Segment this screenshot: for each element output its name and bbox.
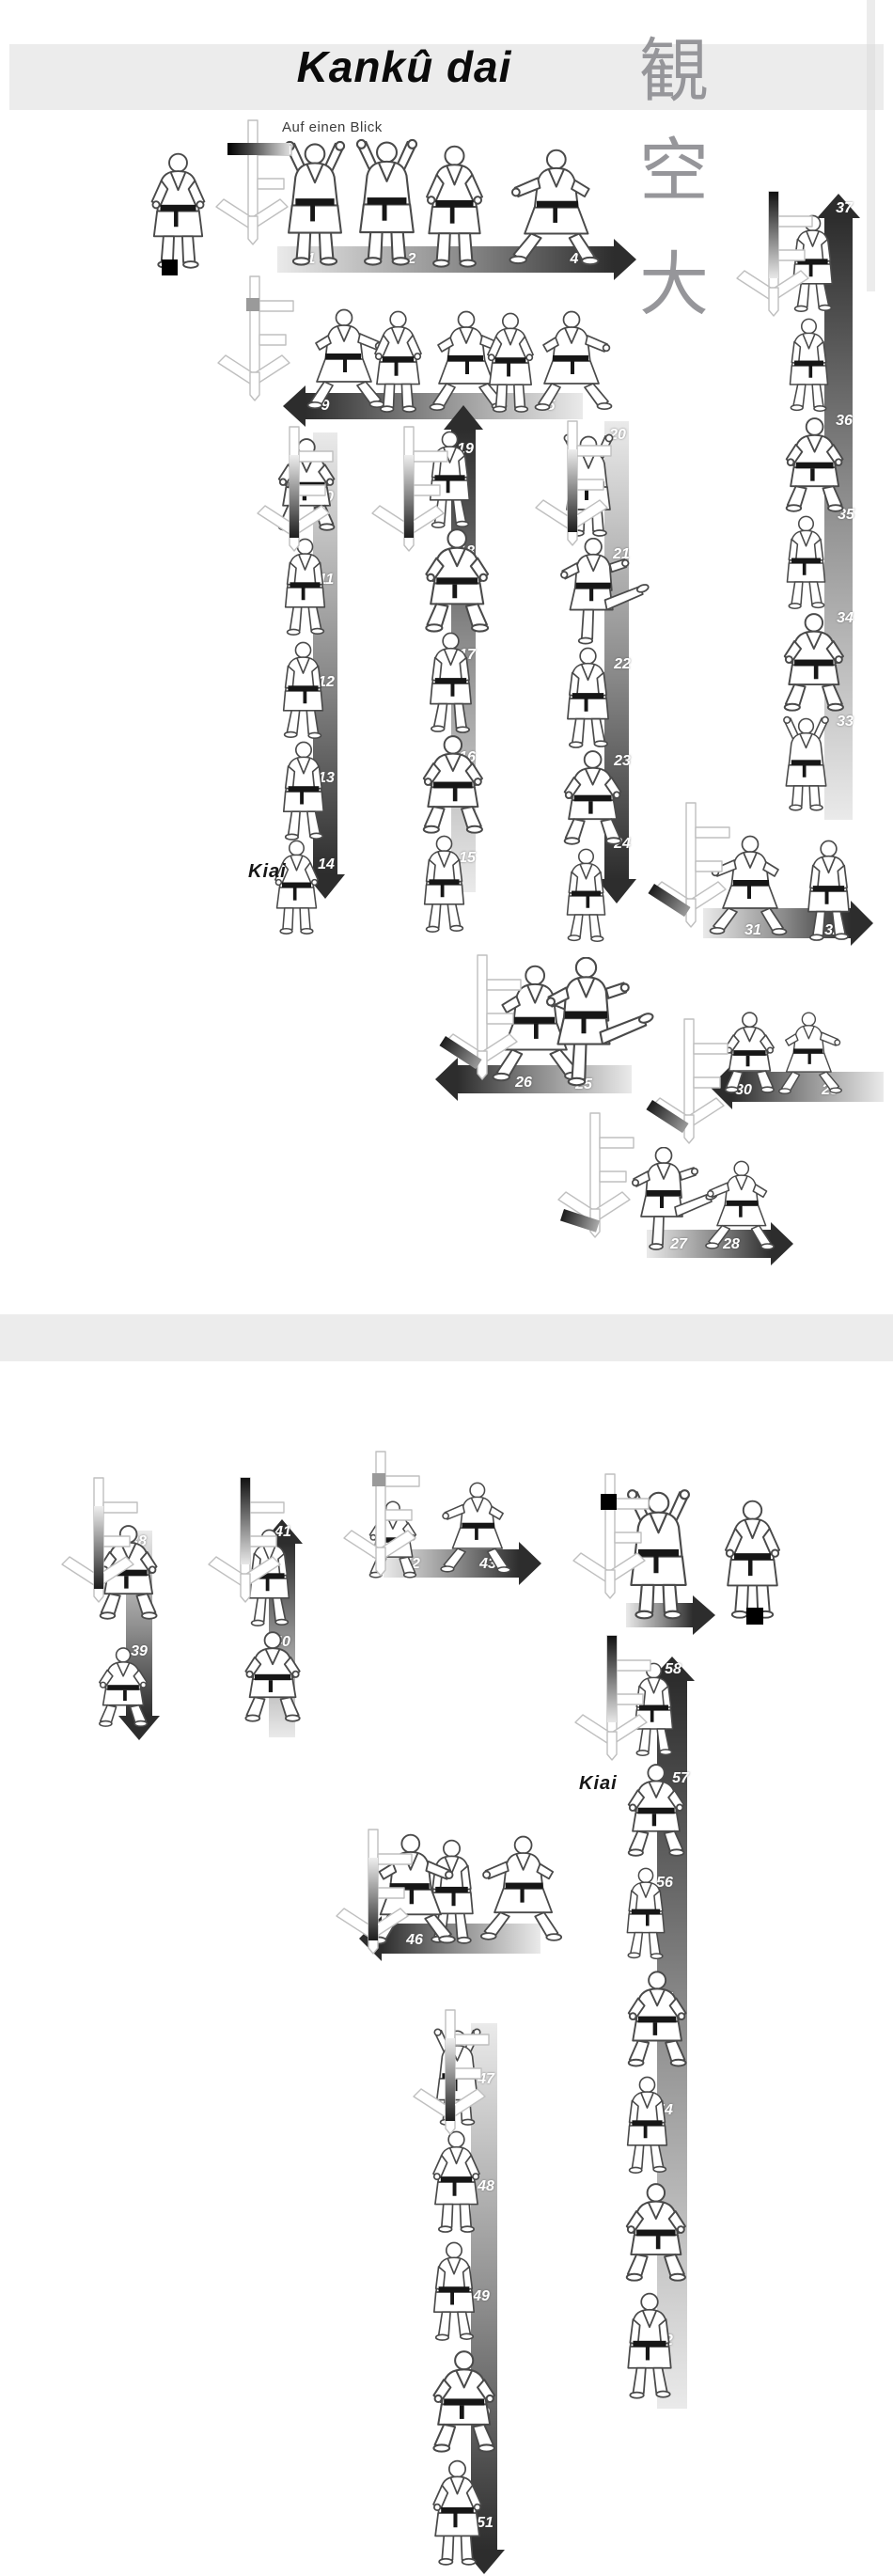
page-title: Kankû dai (216, 41, 592, 92)
embusen-highlight (372, 1473, 385, 1486)
kanji-char: 大 (639, 249, 709, 322)
embusen-highlight (368, 1858, 378, 1940)
karateka-figure (271, 840, 322, 935)
karateka-figure (620, 2292, 679, 2401)
karateka-figure (541, 957, 654, 1089)
embusen-glyph (406, 2008, 493, 2149)
karateka-figure (417, 835, 471, 935)
karateka-figure (720, 1500, 785, 1620)
embusen-glyph (337, 1450, 423, 1591)
karateka-figure (429, 2459, 486, 2567)
embusen-glyph (55, 1476, 141, 1617)
start-square (162, 259, 178, 275)
karateka-figure (620, 2076, 674, 2175)
karateka-figure (370, 310, 426, 414)
karateka-figure (780, 417, 847, 513)
embusen-glyph (211, 275, 297, 416)
embusen-glyph (329, 1828, 415, 1969)
karateka-figure (421, 145, 488, 269)
kanji-char: 観 (639, 36, 709, 109)
karateka-figure (778, 715, 834, 812)
karateka-figure (350, 137, 424, 267)
karateka-figure (427, 2350, 499, 2454)
karateka-figure (775, 1012, 846, 1098)
karateka-figure (476, 1835, 567, 1946)
embusen-glyph (551, 1111, 637, 1252)
karateka-figure (419, 735, 489, 835)
embusen-highlight (227, 143, 290, 155)
kata-poster: Kankû dai Auf einen Blick 観 空 大 12349876… (0, 0, 893, 2576)
embusen-glyph (647, 801, 733, 942)
karateka-figure (801, 840, 856, 943)
karateka-figure (622, 2183, 692, 2283)
karateka-figure (560, 647, 616, 750)
section-divider (0, 1314, 893, 1361)
karateka-figure (530, 310, 617, 416)
karateka-figure (780, 515, 832, 611)
karateka-figure (504, 149, 604, 271)
karateka-figure (622, 1971, 690, 2068)
step-number: 22 (614, 656, 631, 673)
embusen-glyph (566, 1472, 652, 1613)
page-subtitle: Auf einen Blick (282, 119, 383, 135)
karateka-figure (276, 741, 331, 842)
arrow-tip (614, 239, 636, 280)
embusen-glyph (528, 419, 615, 560)
karateka-figure (701, 1160, 778, 1254)
embusen-highlight (601, 1494, 617, 1510)
embusen-highlight (446, 2038, 455, 2121)
karateka-figure (427, 2241, 481, 2343)
karateka-figure (240, 1631, 304, 1723)
kiai-label: Kiai (579, 1773, 618, 1795)
embusen-glyph (729, 190, 816, 331)
karateka-figure (423, 632, 478, 735)
kanji-char: 空 (639, 135, 709, 209)
embusen-glyph (250, 425, 337, 566)
karateka-figure (436, 1482, 515, 1578)
embusen-highlight (404, 455, 414, 538)
arrow-tip (519, 1542, 541, 1585)
embusen-highlight (241, 1478, 250, 1564)
embusen-glyph (568, 1634, 654, 1775)
karateka-figure (276, 641, 330, 741)
end-square (746, 1608, 763, 1625)
embusen-glyph (645, 1017, 731, 1158)
scan-artifact (867, 0, 875, 291)
karateka-figure (780, 613, 850, 713)
embusen-highlight (607, 1636, 617, 1722)
karateka-figure (560, 848, 612, 944)
embusen-highlight (94, 1506, 103, 1589)
embusen-highlight (568, 449, 577, 532)
karateka-figure (620, 1867, 671, 1961)
embusen-glyph (201, 1476, 288, 1617)
embusen-highlight (769, 192, 778, 278)
kiai-label: Kiai (248, 861, 287, 883)
kanji-title: 観 空 大 (622, 36, 726, 322)
embusen-highlight (290, 455, 299, 538)
karateka-figure (558, 750, 625, 846)
karateka-figure (783, 318, 835, 414)
embusen-glyph (209, 118, 295, 259)
embusen-highlight (246, 298, 259, 311)
karateka-figure (96, 1647, 152, 1728)
embusen-glyph (438, 953, 525, 1094)
karateka-figure (147, 152, 210, 270)
step-number: 33 (837, 714, 854, 730)
karateka-figure (622, 1764, 688, 1858)
embusen-glyph (365, 425, 451, 566)
